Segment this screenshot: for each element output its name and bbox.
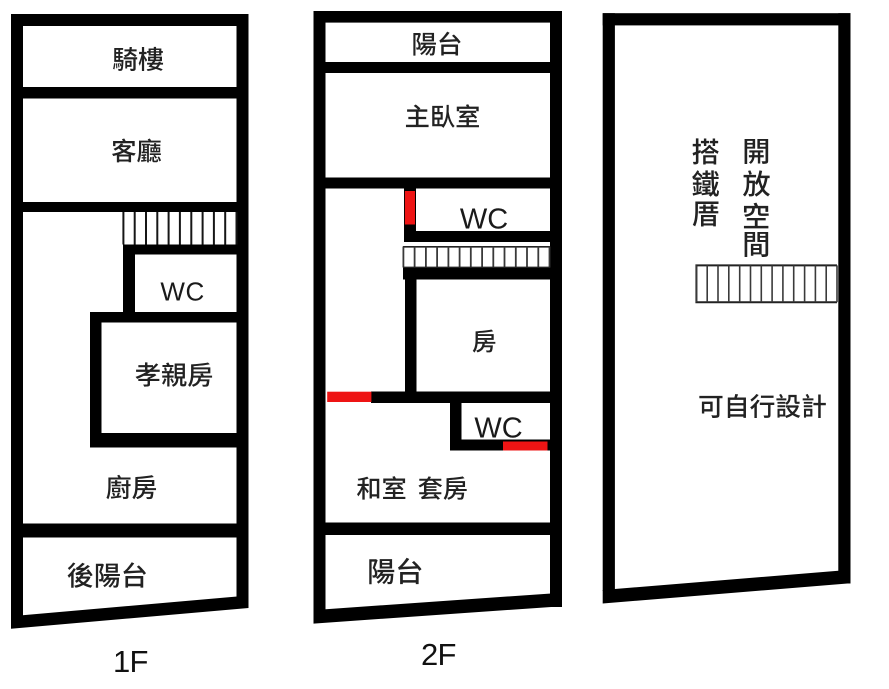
svg-text:WC: WC xyxy=(160,276,204,306)
svg-text:WC: WC xyxy=(460,203,508,235)
svg-text:1F: 1F xyxy=(113,644,148,679)
svg-text:2F: 2F xyxy=(421,637,456,672)
